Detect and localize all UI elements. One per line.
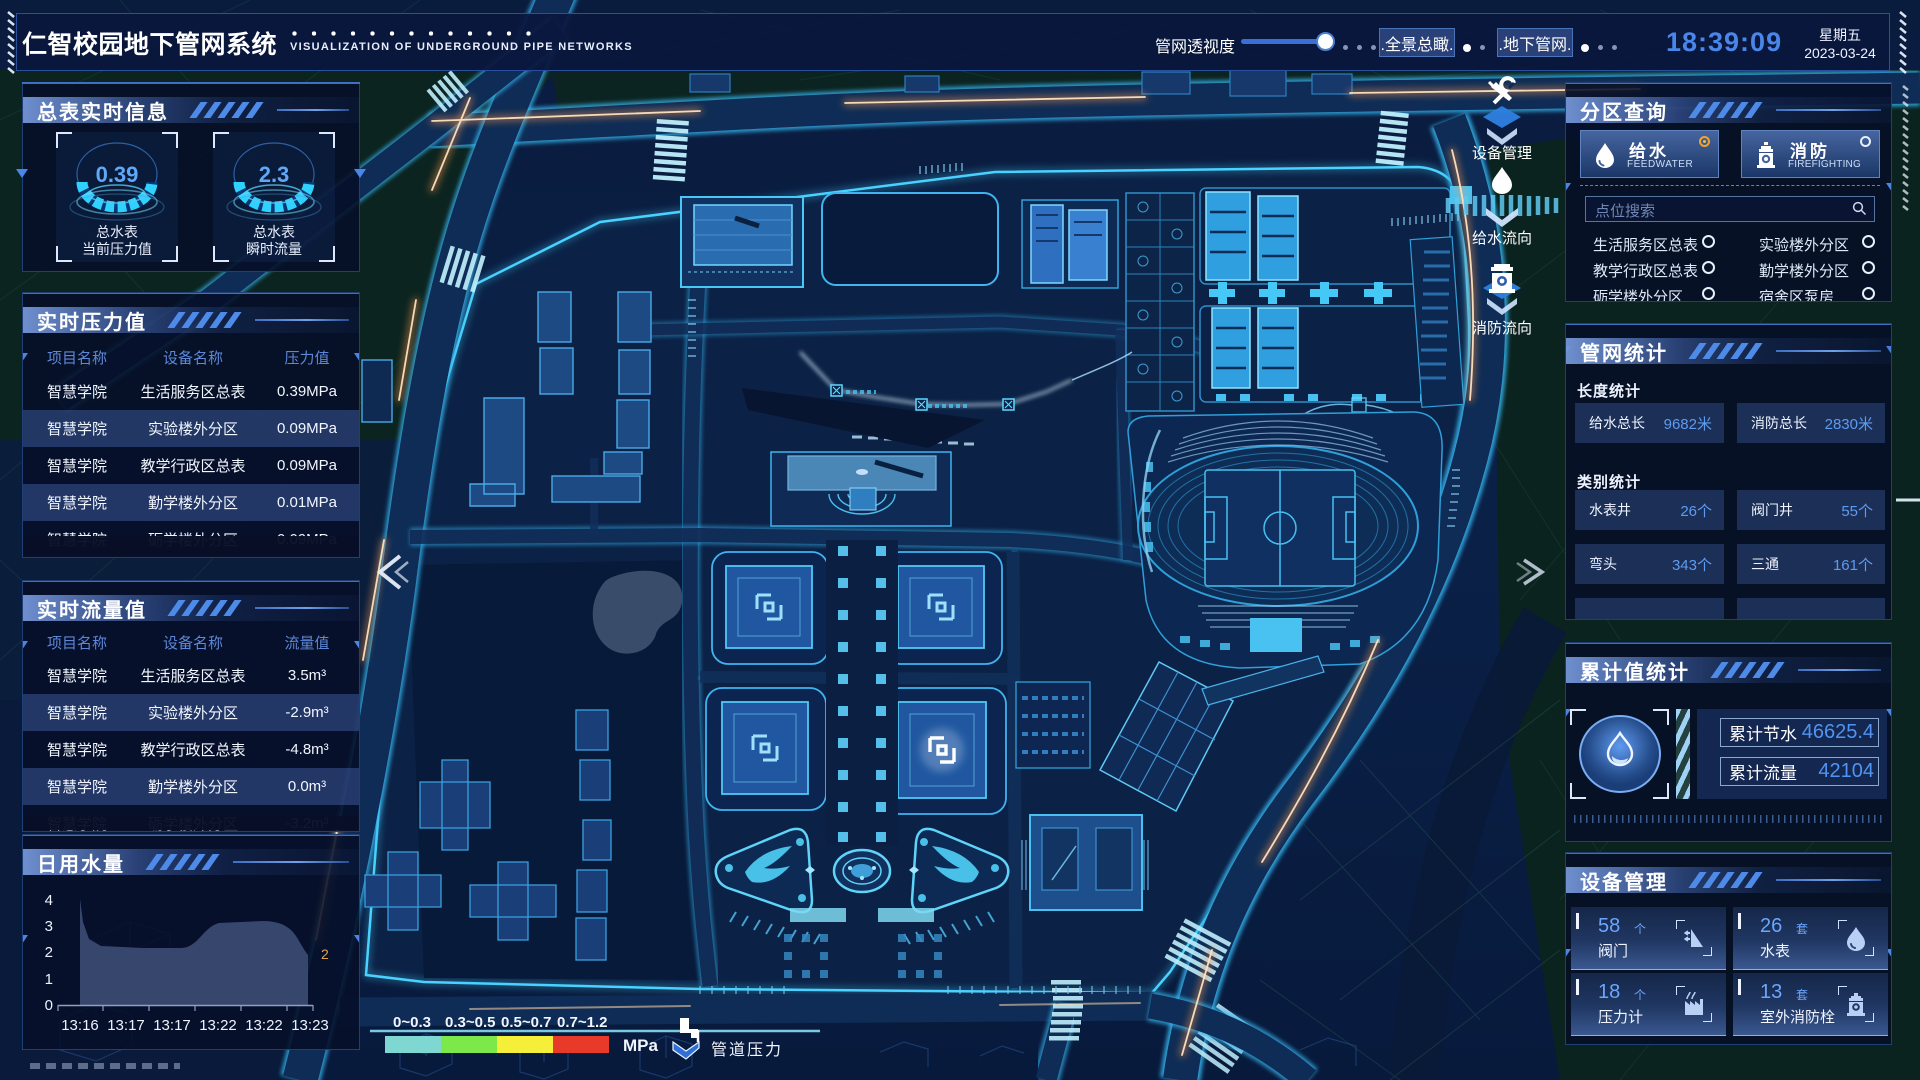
svg-text:2.3: 2.3 bbox=[259, 162, 290, 187]
svg-text:消防流向: 消防流向 bbox=[1472, 320, 1532, 337]
svg-text:13:22: 13:22 bbox=[245, 1017, 283, 1034]
svg-text:2: 2 bbox=[45, 944, 53, 961]
svg-text:0: 0 bbox=[45, 997, 53, 1014]
svg-text:13:22: 13:22 bbox=[199, 1017, 237, 1034]
svg-text:0.39: 0.39 bbox=[96, 162, 139, 187]
svg-text:4: 4 bbox=[45, 892, 53, 909]
svg-text:设备管理: 设备管理 bbox=[1472, 145, 1532, 162]
svg-text:2: 2 bbox=[321, 946, 329, 962]
svg-text:13:17: 13:17 bbox=[107, 1017, 145, 1034]
svg-text:给水流向: 给水流向 bbox=[1472, 230, 1532, 247]
svg-text:13:16: 13:16 bbox=[61, 1017, 99, 1034]
svg-text:1: 1 bbox=[45, 971, 53, 988]
svg-text:13:17: 13:17 bbox=[153, 1017, 191, 1034]
svg-text:3: 3 bbox=[45, 918, 53, 935]
svg-text:13:23: 13:23 bbox=[291, 1017, 329, 1034]
